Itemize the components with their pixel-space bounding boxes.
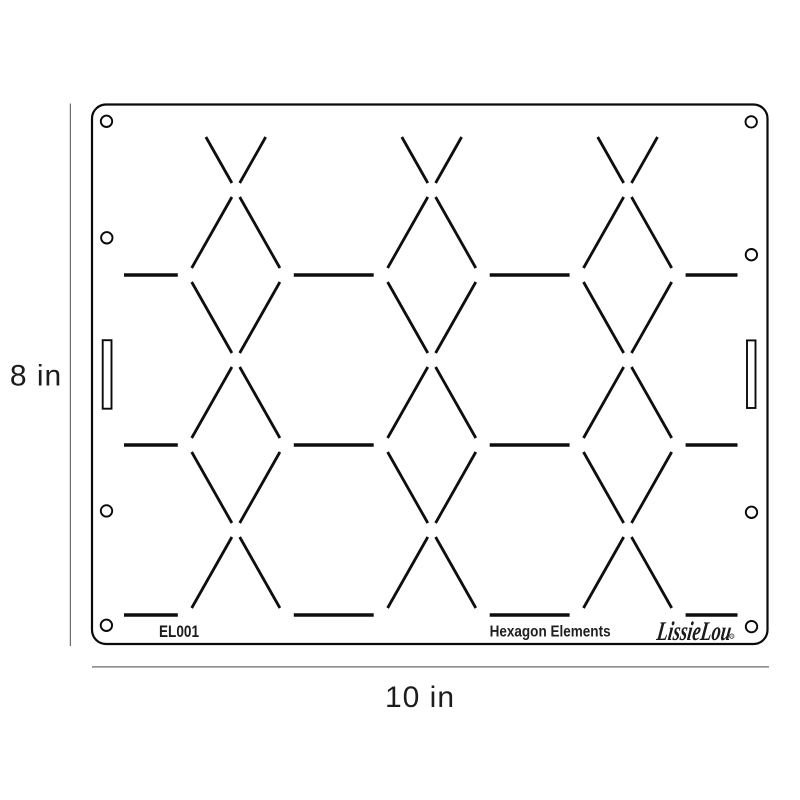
svg-text:10 in: 10 in [385, 681, 455, 714]
svg-text:EL001: EL001 [159, 623, 199, 641]
svg-text:Hexagon Elements: Hexagon Elements [490, 623, 611, 640]
svg-text:R: R [730, 635, 733, 639]
svg-text:8 in: 8 in [10, 360, 62, 393]
svg-text:LissieLou: LissieLou [654, 616, 733, 646]
